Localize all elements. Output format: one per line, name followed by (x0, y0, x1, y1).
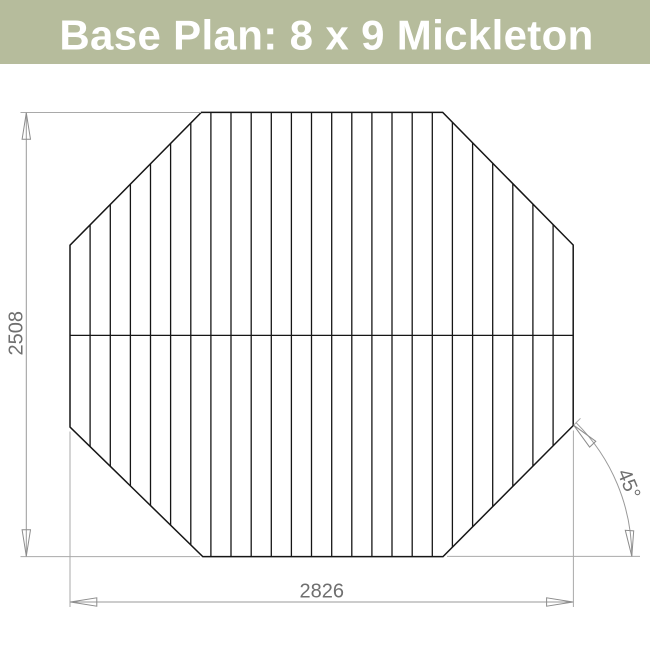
svg-text:Base Plan: 8 x 9 Mickleton: Base Plan: 8 x 9 Mickleton (59, 12, 593, 59)
svg-text:2826: 2826 (300, 581, 345, 603)
svg-text:2508: 2508 (6, 311, 28, 356)
